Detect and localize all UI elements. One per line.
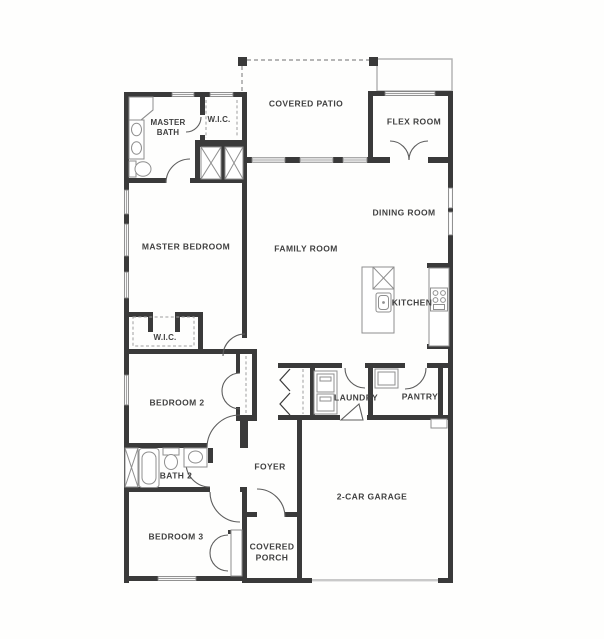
room-label-wic-master: W.I.C. [208,115,231,125]
toilet-icon [129,161,151,177]
room-label-bedroom-2: BEDROOM 2 [149,398,204,409]
bath2-linen-icon [125,448,138,487]
bathtub-icon [139,449,159,488]
room-label-family-room: FAMILY ROOM [274,244,337,255]
water-heater-icon [431,419,447,428]
room-label-kitchen: KITCHEN [392,298,433,309]
patio-posts [238,57,378,66]
double-vanity-icon [129,120,144,159]
room-label-master-bath: MASTER BATH [151,118,186,138]
room-label-bedroom-3: BEDROOM 3 [148,532,203,543]
sink2-icon [184,448,207,467]
room-label-dining-room: DINING ROOM [373,208,436,219]
room-label-foyer: FOYER [254,462,285,473]
room-label-pantry: PANTRY [402,392,438,403]
room-label-laundry: LAUNDRY [334,393,378,404]
bedroom3-closet-shelf [231,530,242,576]
toilet2-icon [163,448,179,470]
kitchen-sink-icon [376,293,391,312]
room-label-covered-patio: COVERED PATIO [269,99,343,110]
room-label-garage: 2-CAR GARAGE [337,492,407,503]
room-label-wic-2: W.I.C. [154,333,177,343]
room-label-flex-room: FLEX ROOM [387,117,441,128]
kitchen-island [362,267,394,333]
roof-outline [377,59,452,91]
closet-shelving [133,100,439,575]
room-label-bath-2: BATH 2 [160,471,192,482]
shower-icon [129,97,153,120]
pantry-cabinet-icon [375,369,398,388]
room-label-master-bedroom: MASTER BEDROOM [142,242,230,253]
floor-plan-drawing [0,0,604,639]
hall-closet-bifold-icon [280,369,290,415]
stove-icon [431,288,448,311]
garage-door [312,579,438,581]
room-label-covered-porch: COVERED PORCH [250,541,295,562]
floor-plan: MASTER BATH W.I.C. COVERED PATIO FLEX RO… [0,0,604,639]
patio-dashed-outline [242,60,369,93]
